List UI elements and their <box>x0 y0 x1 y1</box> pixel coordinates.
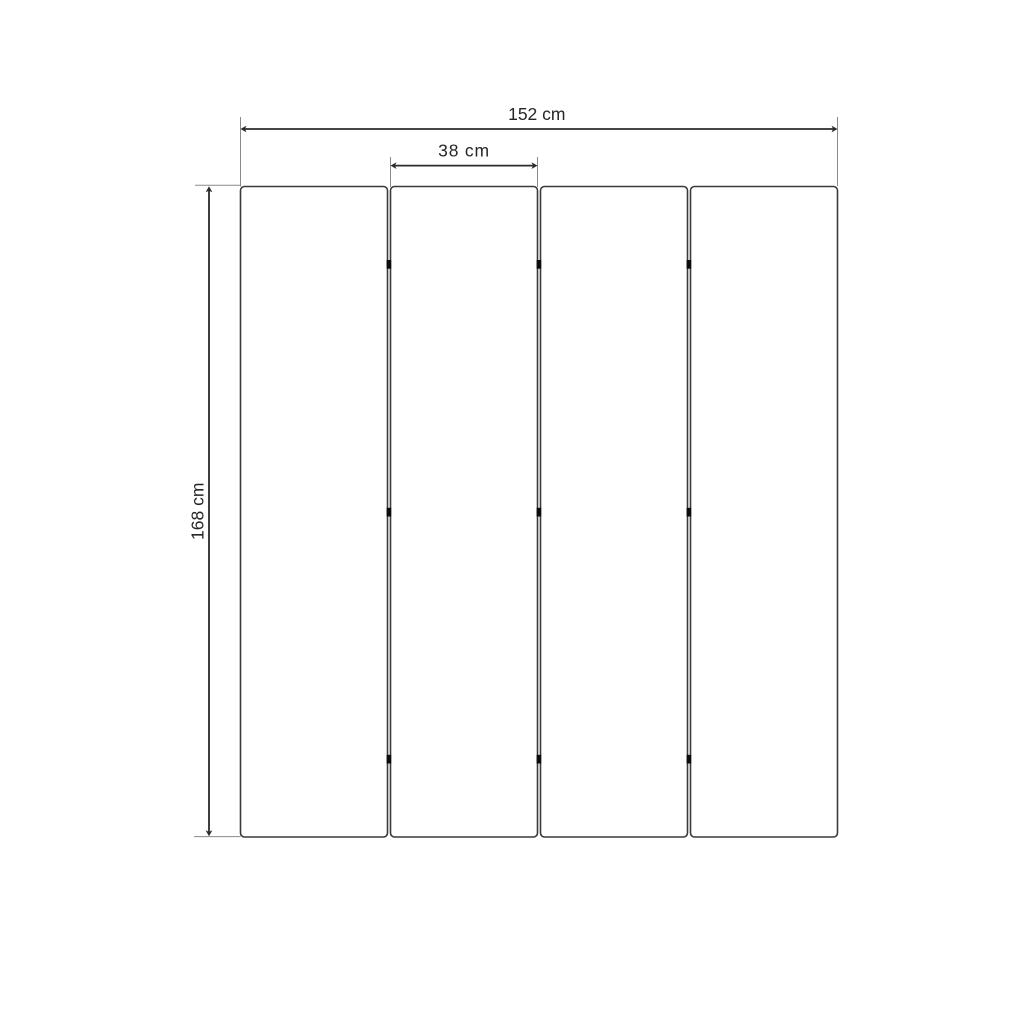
svg-text:152 cm: 152 cm <box>508 104 565 124</box>
svg-text:38 cm: 38 cm <box>438 141 490 161</box>
svg-text:168 cm: 168 cm <box>188 483 208 540</box>
